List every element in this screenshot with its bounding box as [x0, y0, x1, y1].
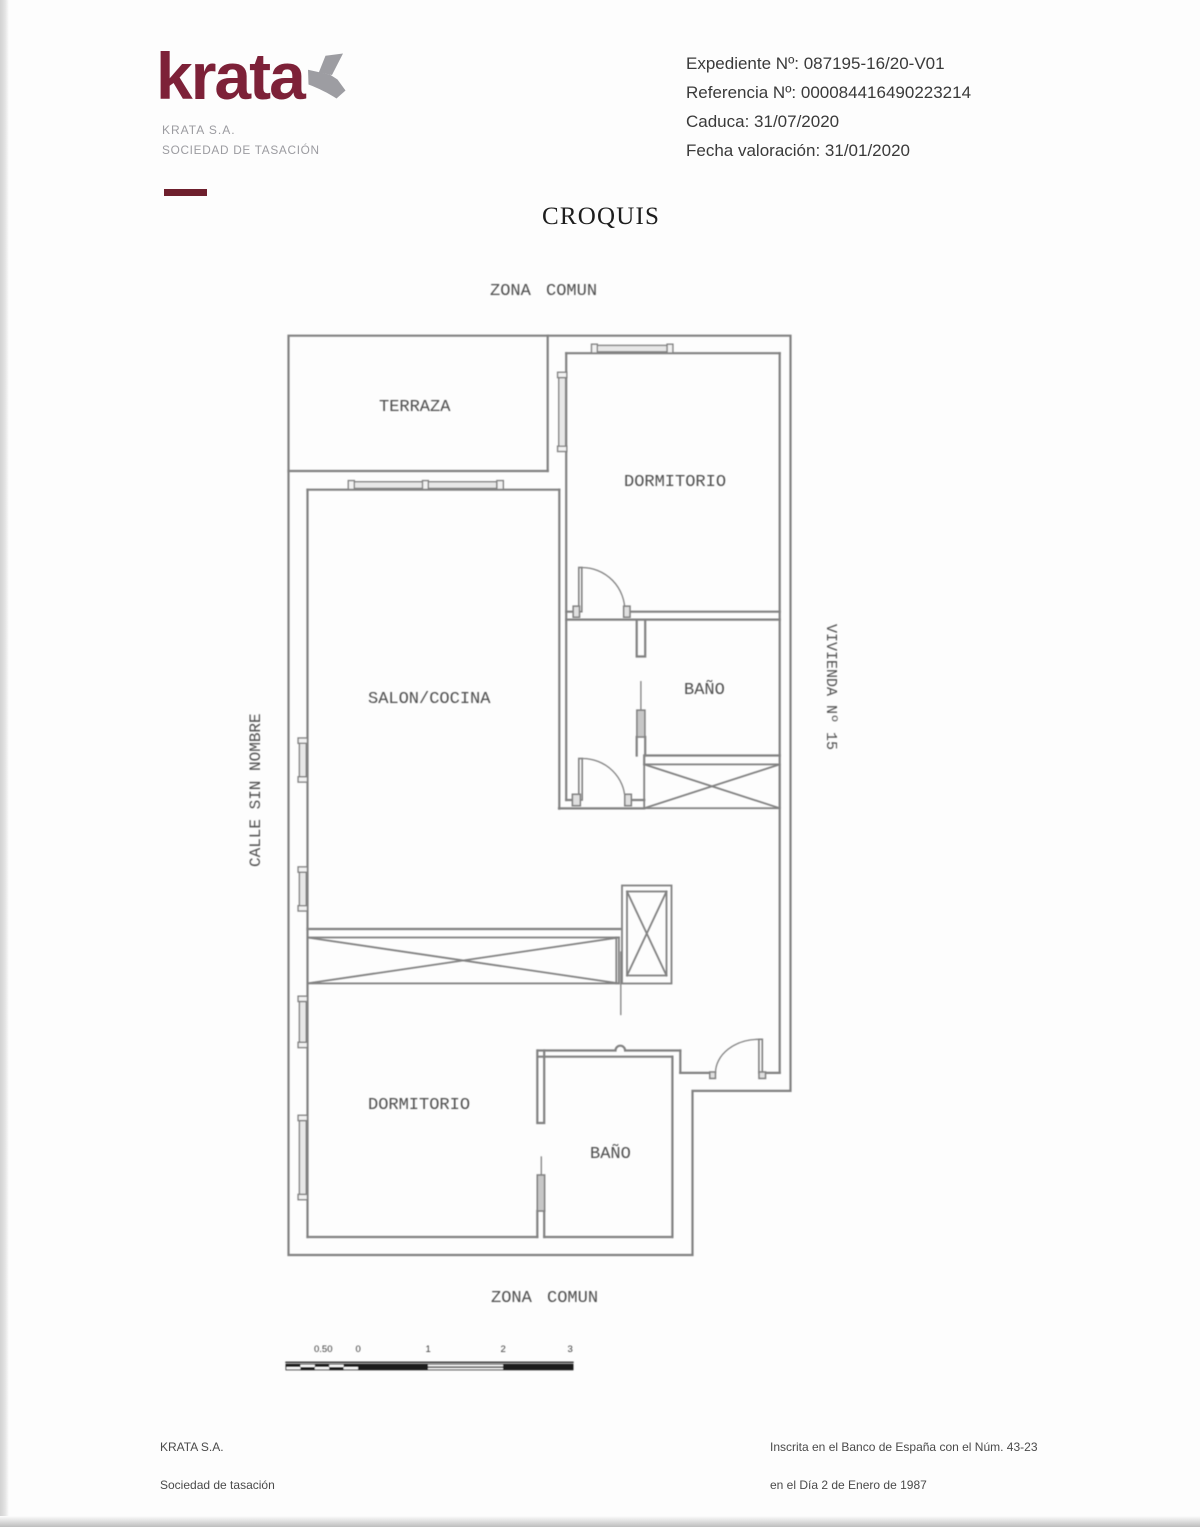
svg-text:0: 0 [356, 1344, 361, 1355]
svg-text:ZONA COMUN: ZONA COMUN [491, 1289, 598, 1308]
svg-text:TERRAZA: TERRAZA [379, 398, 451, 417]
svg-text:2: 2 [501, 1344, 506, 1355]
svg-text:3: 3 [568, 1344, 573, 1355]
svg-text:DORMITORIO: DORMITORIO [368, 1096, 470, 1115]
svg-text:CALLE SIN NOMBRE: CALLE SIN NOMBRE [247, 713, 265, 867]
svg-text:ZONA COMUN: ZONA COMUN [490, 282, 597, 301]
svg-text:DORMITORIO: DORMITORIO [624, 473, 726, 492]
svg-text:SALON/COCINA: SALON/COCINA [368, 690, 491, 709]
svg-text:0.50: 0.50 [314, 1344, 333, 1355]
svg-text:BAÑO: BAÑO [684, 680, 725, 700]
svg-text:1: 1 [426, 1344, 431, 1355]
svg-text:VIVIENDA Nº 15: VIVIENDA Nº 15 [822, 624, 839, 750]
svg-text:BAÑO: BAÑO [590, 1144, 631, 1164]
